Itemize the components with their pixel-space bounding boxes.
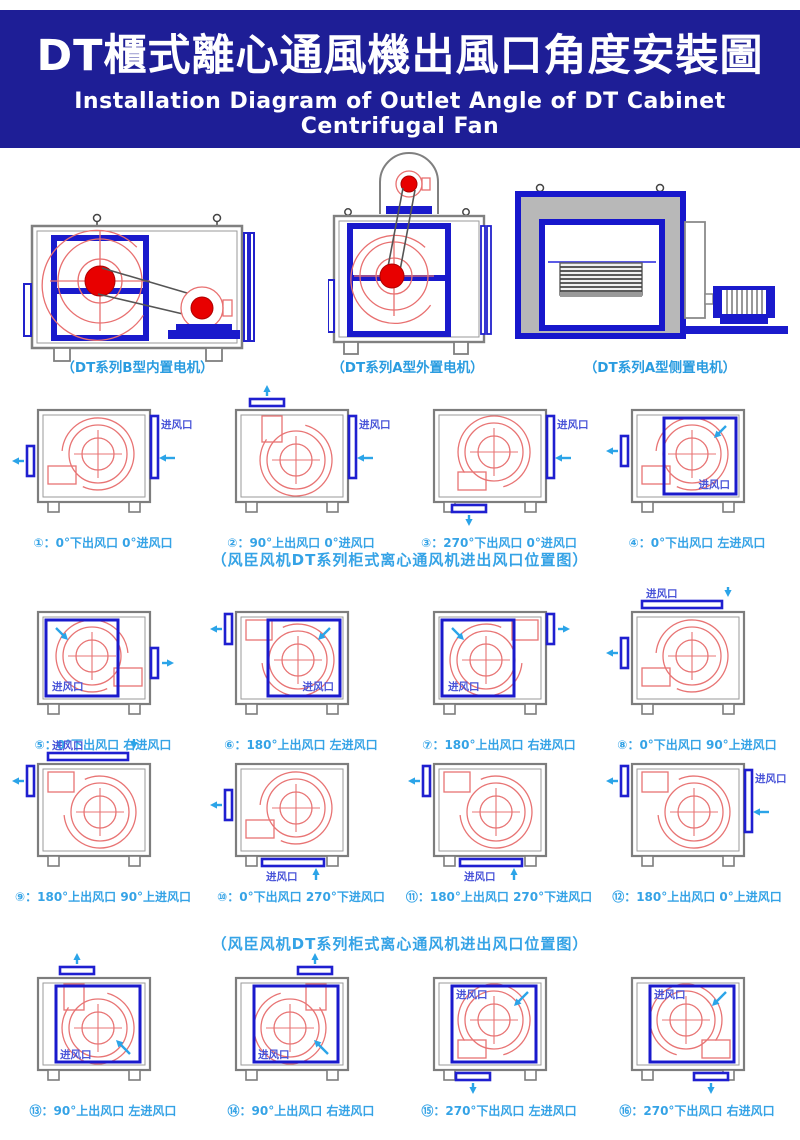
fan-orientation-diagram: 进风口 — [8, 950, 198, 1098]
diagram-cell-8: 进风口⑧：0°下出风口 90°上进风口 — [598, 584, 796, 753]
fan-orientation-diagram: 进风口 — [8, 736, 198, 884]
airflow-arrow-icon — [408, 777, 415, 784]
diagram-caption: ⑨：180°上出风口 90°上进风口 — [15, 888, 191, 905]
fan-orientation-diagram: 进风口 — [602, 950, 792, 1098]
airflow-arrow-icon — [12, 457, 19, 464]
diagram-cell-13: 进风口⑬：90°上出风口 左进风口 — [4, 950, 202, 1119]
drawing-caption-3: （DT系列A型侧置电机） — [525, 356, 795, 376]
fan-pulley — [380, 264, 404, 288]
diagram-cell-15: 进风口⑮：270°下出风口 左进风口 — [400, 950, 598, 1119]
diagram-cell-2: 进风口②：90°上出风口 0°进风口 — [202, 382, 400, 551]
airflow-arrow-icon — [312, 868, 319, 875]
airflow-arrow-icon — [707, 1087, 714, 1094]
fan-orientation-diagram: 进风口 — [404, 950, 594, 1098]
diagram-cell-12: 进风口⑫：180°上出风口 0°上进风口 — [598, 736, 796, 905]
airflow-arrow-icon — [563, 625, 570, 632]
cabinet-box — [236, 764, 348, 856]
inlet-label: 进风口 — [303, 680, 335, 693]
inlet-label: 进风口 — [654, 988, 686, 1001]
outlet-port — [151, 648, 158, 678]
airflow-arrow-icon — [159, 454, 166, 461]
inlet-label: 进风口 — [557, 418, 589, 431]
airflow-arrow-icon — [753, 808, 760, 815]
diagram-cell-11: 进风口⑪：180°上出风口 270°下进风口 — [400, 736, 598, 905]
diagram-row-3: 进风口⑨：180°上出风口 90°上进风口 进风口⑩：0°下出风口 270°下进… — [4, 736, 796, 905]
inlet-port — [349, 416, 356, 478]
inlet-port — [48, 753, 128, 760]
diagram-cell-16: 进风口⑯：270°下出风口 右进风口 — [598, 950, 796, 1119]
outlet-port — [621, 638, 628, 668]
diagram-caption: ⑫：180°上出风口 0°上进风口 — [612, 888, 782, 905]
diagram-cell-7: 进风口⑦：180°上出风口 右进风口 — [400, 584, 598, 753]
fan-orientation-diagram: 进风口 — [404, 736, 594, 884]
fan-orientation-diagram: 进风口 — [602, 584, 792, 732]
outlet-port — [60, 967, 94, 974]
drawing-a-type-side-motor — [508, 178, 793, 346]
outlet-port — [250, 399, 284, 406]
cabinet-box — [38, 410, 150, 502]
inlet-label: 进风口 — [60, 1048, 92, 1061]
cabinet-box — [38, 764, 150, 856]
outlet-port — [27, 446, 34, 476]
page-subtitle: Installation Diagram of Outlet Angle of … — [0, 81, 800, 139]
section-caption-1: （风臣风机DT系列柜式离心通风机进出风口位置图） — [0, 549, 800, 570]
outlet-port — [456, 1073, 490, 1080]
diagram-cell-10: 进风口⑩：0°下出风口 270°下进风口 — [202, 736, 400, 905]
diagram-cell-14: 进风口⑭：90°上出风口 右进风口 — [202, 950, 400, 1119]
diagram-row-1: 进风口①：0°下出风口 0°进风口 进风口②：90°上出风口 0°进风口 进风口… — [4, 382, 796, 551]
diagram-caption: ⑬：90°上出风口 左进风口 — [30, 1102, 177, 1119]
grille — [560, 263, 642, 297]
inlet-label: 进风口 — [161, 418, 193, 431]
airflow-arrow-icon — [73, 953, 80, 960]
diagram-cell-1: 进风口①：0°下出风口 0°进风口 — [4, 382, 202, 551]
airflow-arrow-icon — [311, 953, 318, 960]
airflow-arrow-icon — [606, 649, 613, 656]
motor — [713, 286, 775, 324]
inlet-port — [151, 416, 158, 478]
outlet-port — [298, 967, 332, 974]
fan-orientation-diagram: 进风口 — [206, 584, 396, 732]
outlet-port — [225, 790, 232, 820]
fan-orientation-diagram: 进风口 — [206, 382, 396, 530]
outlet-port — [225, 614, 232, 644]
outlet-port — [694, 1073, 728, 1080]
fan-orientation-diagram: 进风口 — [602, 382, 792, 530]
header-banner: DT櫃式離心通風機出風口角度安裝圖 Installation Diagram o… — [0, 10, 800, 148]
diagram-row-4: 进风口⑬：90°上出风口 左进风口 进风口⑭：90°上出风口 右进风口 进风口⑮… — [4, 950, 796, 1119]
airflow-arrow-icon — [263, 385, 270, 392]
fan-orientation-diagram: 进风口 — [404, 584, 594, 732]
inlet-label: 进风口 — [456, 988, 488, 1001]
inlet-label: 进风口 — [266, 870, 298, 883]
airflow-arrow-icon — [606, 447, 613, 454]
installation-diagram-page: DT櫃式離心通風機出風口角度安裝圖 Installation Diagram o… — [0, 0, 800, 1140]
airflow-arrow-icon — [210, 801, 217, 808]
diagram-caption: ⑩：0°下出风口 270°下进风口 — [217, 888, 385, 905]
page-title: DT櫃式離心通風機出風口角度安裝圖 — [0, 10, 800, 81]
inlet-label: 进风口 — [464, 870, 496, 883]
fan-orientation-diagram: 进风口 — [404, 382, 594, 530]
inlet-port — [547, 416, 554, 478]
diagram-cell-5: 进风口⑤：0°下出风口 右进风口 — [4, 584, 202, 753]
diagram-caption: ⑪：180°上出风口 270°下进风口 — [406, 888, 592, 905]
drawing-a-type-external-motor — [328, 152, 493, 364]
inlet-label: 进风口 — [755, 772, 787, 785]
inlet-label: 进风口 — [646, 587, 678, 600]
inlet-port — [745, 770, 752, 832]
outlet-port — [621, 766, 628, 796]
airflow-arrow-icon — [724, 590, 731, 597]
fan-orientation-diagram: 进风口 — [602, 736, 792, 884]
airflow-arrow-icon — [555, 454, 562, 461]
diagram-cell-9: 进风口⑨：180°上出风口 90°上进风口 — [4, 736, 202, 905]
airflow-arrow-icon — [130, 742, 137, 749]
inlet-label: 进风口 — [52, 739, 84, 752]
airflow-arrow-icon — [210, 625, 217, 632]
fan-orientation-diagram: 进风口 — [8, 382, 198, 530]
airflow-arrow-icon — [510, 868, 517, 875]
diagram-caption: ⑮：270°下出风口 左进风口 — [421, 1102, 576, 1119]
diagram-cell-4: 进风口④：0°下出风口 左进风口 — [598, 382, 796, 551]
diagram-row-2: 进风口⑤：0°下出风口 右进风口 进风口⑥：180°上出风口 左进风口 进风口⑦… — [4, 584, 796, 753]
fan-orientation-diagram: 进风口 — [206, 950, 396, 1098]
cabinet-box — [632, 764, 744, 856]
outlet-port — [452, 505, 486, 512]
airflow-arrow-icon — [469, 1087, 476, 1094]
diagram-caption: ⑯：270°下出风口 右进风口 — [619, 1102, 774, 1119]
inlet-port — [460, 859, 522, 866]
airflow-arrow-icon — [357, 454, 364, 461]
inlet-label: 进风口 — [448, 680, 480, 693]
fan-orientation-diagram: 进风口 — [206, 736, 396, 884]
drawing-caption-2: （DT系列A型外置电机） — [300, 356, 515, 376]
diagram-caption: ⑭：90°上出风口 右进风口 — [228, 1102, 375, 1119]
cabinet-box — [632, 612, 744, 704]
airflow-arrow-icon — [465, 519, 472, 526]
cabinet-box — [434, 764, 546, 856]
outlet-port — [621, 436, 628, 466]
inlet-label: 进风口 — [258, 1048, 290, 1061]
drawing-b-type-internal-motor — [22, 176, 257, 376]
airflow-arrow-icon — [12, 777, 19, 784]
airflow-arrow-icon — [606, 777, 613, 784]
inlet-port — [642, 601, 722, 608]
inlet-port — [262, 859, 324, 866]
inlet-label: 进风口 — [699, 478, 731, 491]
diagram-cell-3: 进风口③：270°下出风口 0°进风口 — [400, 382, 598, 551]
airflow-arrow-icon — [167, 659, 174, 666]
outlet-port — [27, 766, 34, 796]
diagram-cell-6: 进风口⑥：180°上出风口 左进风口 — [202, 584, 400, 753]
drawing-caption-1: （DT系列B型内置电机） — [20, 356, 255, 376]
outlet-port — [547, 614, 554, 644]
fan-orientation-diagram: 进风口 — [8, 584, 198, 732]
inlet-label: 进风口 — [52, 680, 84, 693]
inlet-label: 进风口 — [359, 418, 391, 431]
outlet-port — [423, 766, 430, 796]
